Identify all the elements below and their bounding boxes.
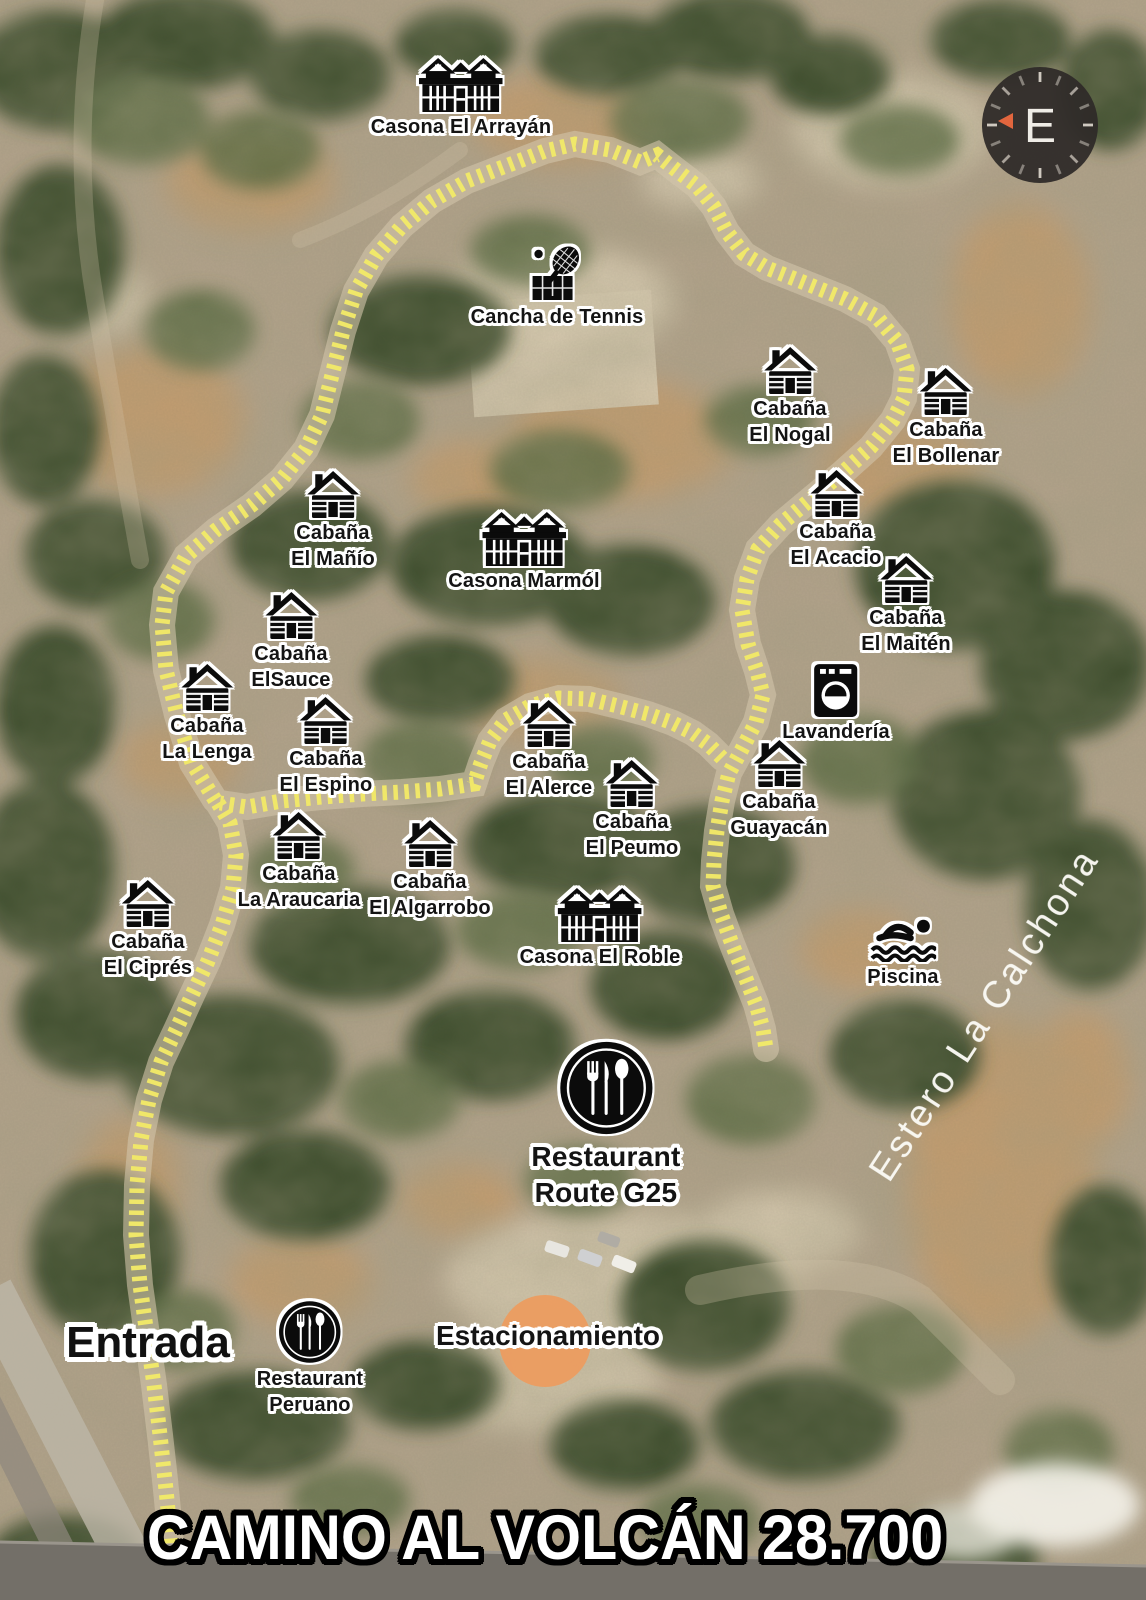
estacionamiento-label: Estacionamiento bbox=[436, 1320, 660, 1352]
compass: E bbox=[978, 63, 1102, 187]
entrada-label: Entrada bbox=[66, 1318, 230, 1368]
resort-map: E Casona El Arrayán Cancha de Tennis Cab… bbox=[0, 0, 1146, 1600]
road-banner: CAMINO AL VOLCÁN 28.700 bbox=[147, 1502, 943, 1574]
compass-letter: E bbox=[1024, 100, 1056, 153]
